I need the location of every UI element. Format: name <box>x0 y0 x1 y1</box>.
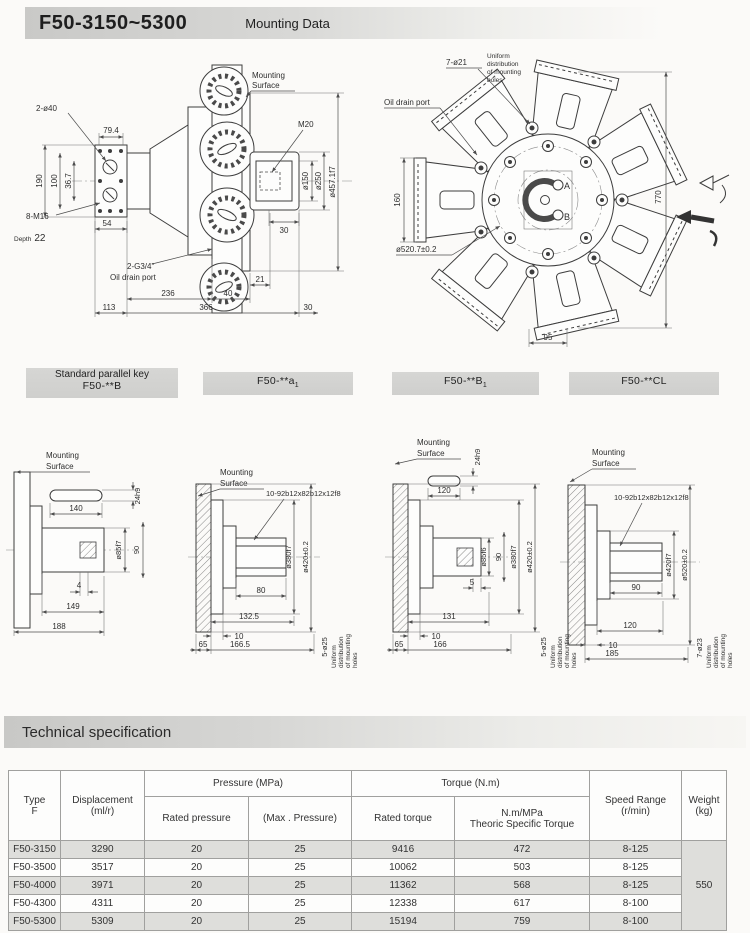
col-max-pressure: (Max . Pressure) <box>249 797 352 841</box>
svg-text:of mounting: of mounting <box>345 634 352 668</box>
spec-cell: 8-125 <box>590 859 682 877</box>
table-row: F50-3150 3290 20 25 9416 472 8-125 550 <box>9 841 727 859</box>
col-rated-torque: Rated torque <box>352 797 455 841</box>
spec-cell: F50-5300 <box>9 913 61 931</box>
rotation-arrows <box>676 175 729 246</box>
col-weight: Weight(kg) <box>682 771 727 841</box>
spec-cell: 10062 <box>352 859 455 877</box>
svg-text:65: 65 <box>395 640 404 649</box>
variant-bar-cl: F50-**CL <box>569 372 719 395</box>
svg-text:131: 131 <box>442 612 456 621</box>
variant-bar-standard-key: Standard parallel key F50-**B <box>26 368 178 398</box>
header-row-groups: TypeF Displacement(ml/r) Pressure (MPa) … <box>9 771 727 797</box>
col-specific-torque: N.m/MPaTheoric Specific Torque <box>455 797 590 841</box>
page-title: F50-3150~5300 <box>39 12 187 35</box>
spec-cell: 568 <box>455 877 590 895</box>
svg-text:7-ø21: 7-ø21 <box>446 58 467 67</box>
svg-text:ø85f7: ø85f7 <box>114 540 123 559</box>
svg-text:ø520±0.2: ø520±0.2 <box>680 549 689 581</box>
page-header-bar: F50-3150~5300 Mounting Data <box>25 7 697 39</box>
svg-text:2-G3/4": 2-G3/4" <box>127 262 154 271</box>
spec-cell: 9416 <box>352 841 455 859</box>
svg-text:7-ø23: 7-ø23 <box>695 638 704 658</box>
group-torque: Torque (N.m) <box>352 771 590 797</box>
spec-cell: 759 <box>455 913 590 931</box>
svg-text:Mounting: Mounting <box>592 448 625 457</box>
svg-text:185: 185 <box>605 649 619 658</box>
svg-text:of mounting: of mounting <box>720 634 727 668</box>
table-row: F50-3500 3517 20 25 10062 503 8-125 <box>9 859 727 877</box>
spec-cell: 3290 <box>61 841 145 859</box>
svg-text:30: 30 <box>304 303 313 312</box>
svg-text:Uniform: Uniform <box>487 53 510 60</box>
drawing-key-b1: Mounting Surface 120 24h9 ø85f6 90 ø380f… <box>385 438 578 668</box>
depth-label: Depth22 <box>14 233 46 244</box>
port-a-label: A <box>564 181 570 191</box>
drawing-standard-key: Mounting Surface 140 24h9 ø85f7 90 4 149… <box>6 451 143 636</box>
svg-text:10-92b12x82b12x12f8: 10-92b12x82b12x12f8 <box>266 489 341 498</box>
spec-cell: 20 <box>145 841 249 859</box>
svg-text:54: 54 <box>103 219 112 228</box>
svg-text:holes: holes <box>571 652 578 668</box>
svg-text:8-M16: 8-M16 <box>26 212 49 221</box>
svg-text:Oil drain port: Oil drain port <box>384 98 431 107</box>
spec-cell: 8-125 <box>590 841 682 859</box>
spec-cell: 617 <box>455 895 590 913</box>
svg-text:ø520.7±0.2: ø520.7±0.2 <box>396 245 437 254</box>
svg-text:65: 65 <box>199 640 208 649</box>
table-row: F50-4300 4311 20 25 12338 617 8-100 <box>9 895 727 913</box>
svg-text:80: 80 <box>257 586 266 595</box>
svg-text:188: 188 <box>52 622 66 631</box>
svg-text:Surface: Surface <box>220 479 248 488</box>
spec-cell: 25 <box>249 895 352 913</box>
svg-text:ø380f7: ø380f7 <box>509 545 518 568</box>
svg-text:2-ø40: 2-ø40 <box>36 104 57 113</box>
svg-text:40: 40 <box>224 289 233 298</box>
svg-text:distribution: distribution <box>338 636 345 668</box>
spec-cell: F50-4300 <box>9 895 61 913</box>
spec-cell: 20 <box>145 859 249 877</box>
svg-text:Surface: Surface <box>46 462 74 471</box>
svg-text:holes: holes <box>352 652 359 668</box>
svg-text:distribution: distribution <box>713 636 720 668</box>
spec-cell: 25 <box>249 841 352 859</box>
mounting-surface-label: Mounting <box>252 71 285 80</box>
uniform-note-a1: Uniform distribution of mounting holes <box>331 634 359 668</box>
group-pressure: Pressure (MPa) <box>145 771 352 797</box>
front-view-drawing: A B <box>414 60 729 340</box>
svg-text:of mounting: of mounting <box>487 69 521 76</box>
mounting-drawings: Mounting Surface M20 ø150 ø250 ø457.1f7 … <box>0 45 750 360</box>
svg-text:5-ø25: 5-ø25 <box>539 637 548 657</box>
svg-text:ø420±0.2: ø420±0.2 <box>525 541 534 573</box>
svg-text:ø250: ø250 <box>314 171 323 190</box>
spec-cell: 12338 <box>352 895 455 913</box>
spec-cell: 472 <box>455 841 590 859</box>
spec-cell: 8-100 <box>590 895 682 913</box>
svg-text:5: 5 <box>470 578 475 587</box>
svg-text:ø85f6: ø85f6 <box>479 547 488 566</box>
svg-text:166.5: 166.5 <box>230 640 251 649</box>
drawing-spline-a1: Mounting Surface 10-92b12x82b12x12f8 80 … <box>188 468 359 668</box>
col-speed-range: Speed Range(r/min) <box>590 771 682 841</box>
svg-text:90: 90 <box>494 553 503 561</box>
svg-text:Mounting: Mounting <box>417 438 450 447</box>
svg-text:ø380f7: ø380f7 <box>284 545 293 568</box>
svg-text:149: 149 <box>66 602 80 611</box>
shaft-variant-drawings: Mounting Surface 140 24h9 ø85f7 90 4 149… <box>0 400 750 710</box>
tech-spec-title: Technical specification <box>22 724 171 741</box>
svg-text:Surface: Surface <box>252 81 280 90</box>
svg-text:4: 4 <box>77 581 82 590</box>
uniform-note-cl: Uniform distribution of mounting holes <box>706 634 734 668</box>
svg-text:Uniform: Uniform <box>331 645 338 668</box>
port-b-label: B <box>564 212 570 222</box>
svg-text:ø420f7: ø420f7 <box>664 553 673 576</box>
svg-text:120: 120 <box>437 486 451 495</box>
spec-cell: 20 <box>145 913 249 931</box>
drawing-spline-cl: Mounting Surface 10-92b12x82b12x12f8 90 … <box>560 448 734 668</box>
svg-text:ø420±0.2: ø420±0.2 <box>301 541 310 573</box>
col-displacement: Displacement(ml/r) <box>61 771 145 841</box>
svg-text:Mounting: Mounting <box>46 451 79 460</box>
svg-text:M20: M20 <box>298 120 314 129</box>
svg-text:166: 166 <box>433 640 447 649</box>
spec-cell: 503 <box>455 859 590 877</box>
spec-table: TypeF Displacement(ml/r) Pressure (MPa) … <box>8 770 727 931</box>
spec-cell: 15194 <box>352 913 455 931</box>
svg-text:132.5: 132.5 <box>239 612 260 621</box>
svg-text:21: 21 <box>256 275 265 284</box>
spec-cell: 25 <box>249 859 352 877</box>
spec-cell: F50-3500 <box>9 859 61 877</box>
svg-text:distribution: distribution <box>557 636 564 668</box>
spec-cell: F50-3150 <box>9 841 61 859</box>
datasheet-page: F50-3150~5300 Mounting Data <box>0 0 750 933</box>
page-subtitle: Mounting Data <box>245 16 330 31</box>
svg-text:366: 366 <box>199 303 213 312</box>
variant-bar-b1: F50-**B1 <box>392 372 539 395</box>
spec-cell: 25 <box>249 913 352 931</box>
svg-text:36.7: 36.7 <box>64 173 73 189</box>
tech-spec-bar: Technical specification <box>4 716 746 748</box>
svg-text:24h9: 24h9 <box>473 449 482 466</box>
svg-text:24h9: 24h9 <box>133 488 142 505</box>
svg-text:distribution: distribution <box>487 61 519 68</box>
svg-text:Surface: Surface <box>417 449 445 458</box>
svg-text:10-92b12x82b12x12f8: 10-92b12x82b12x12f8 <box>614 493 689 502</box>
spec-cell: F50-4000 <box>9 877 61 895</box>
svg-text:190: 190 <box>35 174 44 188</box>
spec-cell: 20 <box>145 895 249 913</box>
svg-text:140: 140 <box>69 504 83 513</box>
spec-cell: 4311 <box>61 895 145 913</box>
spec-cell: 3971 <box>61 877 145 895</box>
svg-text:236: 236 <box>161 289 175 298</box>
svg-text:120: 120 <box>623 621 637 630</box>
spec-cell: 8-125 <box>590 877 682 895</box>
svg-text:ø150: ø150 <box>301 171 310 190</box>
col-type: TypeF <box>9 771 61 841</box>
svg-text:Mounting: Mounting <box>220 468 253 477</box>
svg-text:90: 90 <box>632 583 641 592</box>
svg-text:Uniform: Uniform <box>706 645 713 668</box>
svg-text:79.4: 79.4 <box>103 126 119 135</box>
spec-cell: 25 <box>249 877 352 895</box>
spec-cell: 5309 <box>61 913 145 931</box>
svg-text:100: 100 <box>50 174 59 188</box>
spec-cell: 20 <box>145 877 249 895</box>
svg-text:Uniform: Uniform <box>550 645 557 668</box>
svg-text:770: 770 <box>654 190 663 204</box>
variant-bar-a1: F50-**a1 <box>203 372 353 395</box>
spec-cell: 3517 <box>61 859 145 877</box>
spec-cell: 8-100 <box>590 913 682 931</box>
svg-text:Surface: Surface <box>592 459 620 468</box>
svg-text:90: 90 <box>132 546 141 554</box>
col-rated-pressure: Rated pressure <box>145 797 249 841</box>
svg-text:holes: holes <box>487 77 503 84</box>
table-row: F50-4000 3971 20 25 11362 568 8-125 <box>9 877 727 895</box>
spec-cell: 11362 <box>352 877 455 895</box>
svg-text:ø457.1f7: ø457.1f7 <box>328 166 337 198</box>
svg-text:95: 95 <box>544 333 553 342</box>
svg-text:5-ø25: 5-ø25 <box>320 637 329 657</box>
svg-text:Oil drain port: Oil drain port <box>110 273 157 282</box>
svg-text:113: 113 <box>103 303 116 312</box>
svg-text:holes: holes <box>727 652 734 668</box>
svg-text:30: 30 <box>280 226 289 235</box>
svg-text:160: 160 <box>393 193 402 207</box>
table-row: F50-5300 5309 20 25 15194 759 8-100 <box>9 913 727 931</box>
weight-cell: 550 <box>682 841 727 931</box>
